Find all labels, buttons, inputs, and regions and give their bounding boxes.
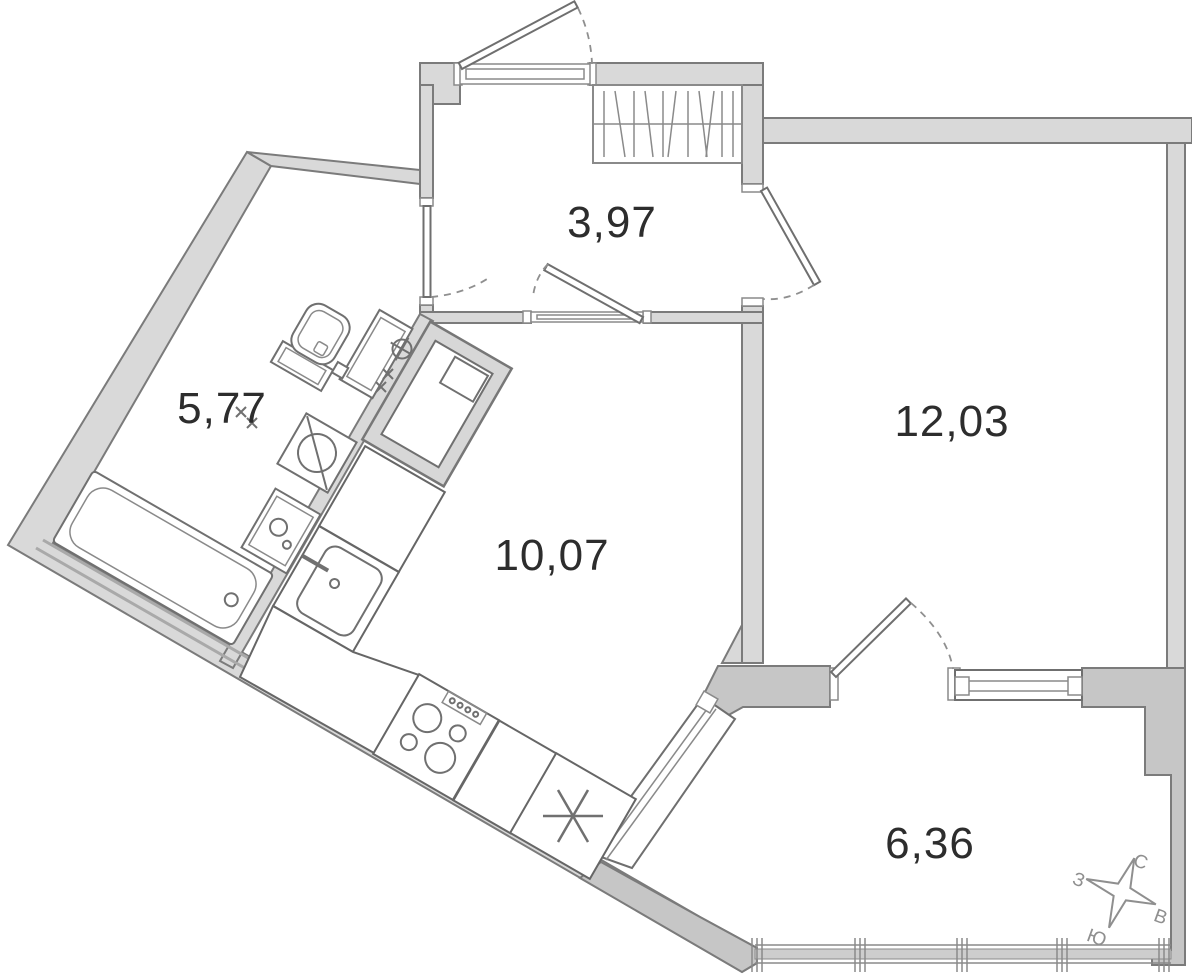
compass-east-label: В <box>1151 905 1170 929</box>
bathroom-door-swing <box>431 279 487 297</box>
bathroom-door-leaf <box>424 206 431 297</box>
bathroom-door <box>420 198 487 305</box>
floor-plan: 3,97 5,77 10,07 12,03 6,36 С В Ю З <box>0 0 1192 976</box>
bedroom-balcony-window <box>955 670 1082 700</box>
kitchen-door <box>523 264 651 323</box>
kitchen-door-sill-inner <box>537 315 638 319</box>
window-block-right <box>1068 677 1082 695</box>
wall-kitchen-bedroom <box>742 323 763 663</box>
wall-bedroom-right <box>1167 143 1185 668</box>
bedroom-door-swing <box>763 285 814 299</box>
balcony-door <box>830 598 960 700</box>
kitchen-door-jamb-right <box>643 311 651 323</box>
wall-bathroom-top <box>247 152 420 184</box>
kitchen-window-glass-2 <box>606 709 716 860</box>
bedroom-door <box>742 184 820 306</box>
bedroom-door-leaf <box>761 188 820 286</box>
room-label-kitchen-living: 10,07 <box>494 531 609 580</box>
wall-hall-bottom-right <box>644 312 763 323</box>
bathroom-door-jamb-top <box>420 198 433 206</box>
bedroom-door-jamb-bottom <box>742 298 763 306</box>
wall-bedroom-top <box>763 118 1192 143</box>
wall-balcony-bottom-left <box>580 862 757 972</box>
balcony-door-leaf <box>831 598 911 677</box>
window-sill <box>963 681 1074 691</box>
compass-north-label: С <box>1130 850 1150 874</box>
compass-rose: С В Ю З <box>1069 845 1170 951</box>
wall-balcony-right <box>1082 668 1185 965</box>
floor-plan-page: 3,97 5,77 10,07 12,03 6,36 С В Ю З <box>0 0 1192 976</box>
entry-sill-inner <box>466 69 584 79</box>
wall-hall-bottom-left <box>420 312 531 323</box>
room-label-hallway: 3,97 <box>567 198 657 247</box>
entry-door <box>454 1 596 85</box>
compass-south-label: Ю <box>1084 925 1109 951</box>
wall-hall-right-upper <box>742 85 763 184</box>
wall-kitchen-bedroom-flare <box>722 625 742 663</box>
room-label-bathroom: 5,77 <box>177 384 267 433</box>
compass-west-label: З <box>1069 869 1087 893</box>
glazing-band <box>755 949 1171 959</box>
bathroom-door-jamb-bottom <box>420 297 433 305</box>
window-block-left <box>955 677 969 695</box>
wall-entry-top-right <box>590 63 763 85</box>
kitchen-door-jamb-left <box>523 311 531 323</box>
wardrobe <box>593 85 742 163</box>
wall-hall-left-upper <box>420 85 433 198</box>
entry-door-leaf <box>459 1 578 69</box>
room-label-balcony: 6,36 <box>885 819 975 868</box>
balcony-glazing <box>752 938 1171 972</box>
entry-door-swing <box>578 8 592 64</box>
balcony-door-swing <box>911 603 953 669</box>
room-label-bedroom: 12,03 <box>894 397 1009 446</box>
